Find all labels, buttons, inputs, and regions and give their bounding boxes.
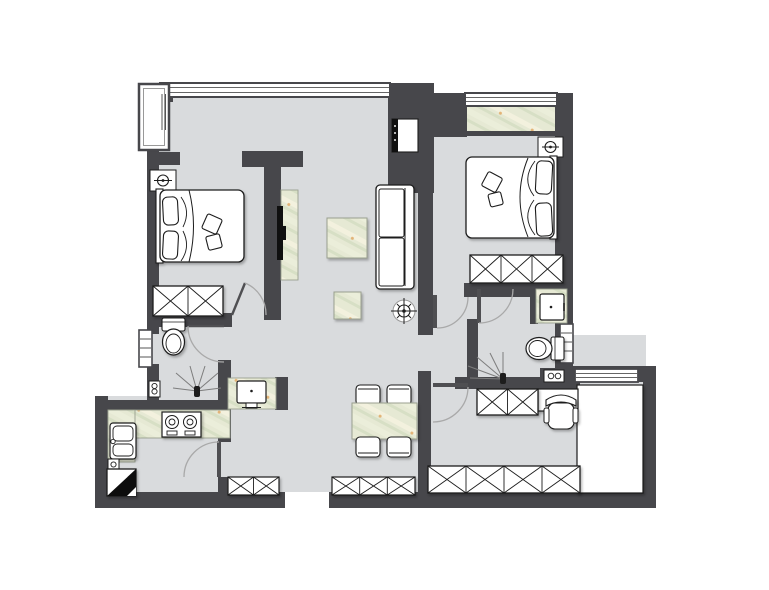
cushion <box>488 191 504 207</box>
coffee-table <box>327 218 367 258</box>
dining-chair <box>387 437 411 457</box>
chair-seat <box>548 403 574 429</box>
sofa <box>376 185 414 289</box>
study-window <box>575 369 638 382</box>
balcony-window <box>465 93 557 106</box>
balcony-sill <box>466 131 557 136</box>
bedroom-2 <box>466 137 563 283</box>
dining-chair <box>356 437 380 457</box>
side-table <box>334 292 361 319</box>
pillow <box>162 231 178 260</box>
top-window-band <box>168 83 390 97</box>
wall <box>418 100 433 335</box>
dining-chair <box>356 385 380 405</box>
bathroom-1-window <box>139 330 152 367</box>
wall-t-bar <box>242 151 303 167</box>
office-chair <box>544 395 578 429</box>
wardrobe-2-section <box>477 389 538 415</box>
refrigerator <box>107 469 136 496</box>
ceiling-lamp-icon <box>150 170 176 191</box>
cushion <box>206 234 223 251</box>
valve-box <box>149 381 160 397</box>
vanity-washbasin <box>228 378 276 409</box>
entry-opening <box>285 493 329 508</box>
wall <box>275 377 288 410</box>
double-sink <box>110 423 136 459</box>
shoe-cabinet-2-section <box>228 477 279 495</box>
washbasin <box>536 289 567 323</box>
wall <box>467 319 478 383</box>
wardrobe-3-section <box>470 255 563 283</box>
double-outlet-box <box>544 370 564 382</box>
toilet <box>526 337 564 360</box>
ceiling-lamp-icon <box>538 137 563 157</box>
floor-plan-canvas <box>0 0 769 590</box>
wall <box>643 366 656 508</box>
dining-table <box>352 403 417 439</box>
floor-plan-drawing <box>0 0 769 590</box>
pillow <box>535 161 553 195</box>
floor-balcony-marble <box>466 106 557 133</box>
wardrobe-4-section <box>428 466 580 493</box>
double-bed <box>466 156 557 239</box>
double-bed <box>156 189 244 263</box>
dining-chair <box>387 385 411 405</box>
built-in-cabinet <box>392 119 418 152</box>
wardrobe-2-section <box>153 286 223 316</box>
pillow <box>535 203 553 237</box>
pillow <box>162 197 178 226</box>
wall <box>430 93 467 137</box>
toilet <box>162 318 185 355</box>
tv <box>277 206 283 260</box>
wall <box>147 152 180 165</box>
gas-cooktop <box>162 412 201 437</box>
bay-window <box>139 84 169 150</box>
shoe-cabinet-3-section <box>332 477 415 495</box>
